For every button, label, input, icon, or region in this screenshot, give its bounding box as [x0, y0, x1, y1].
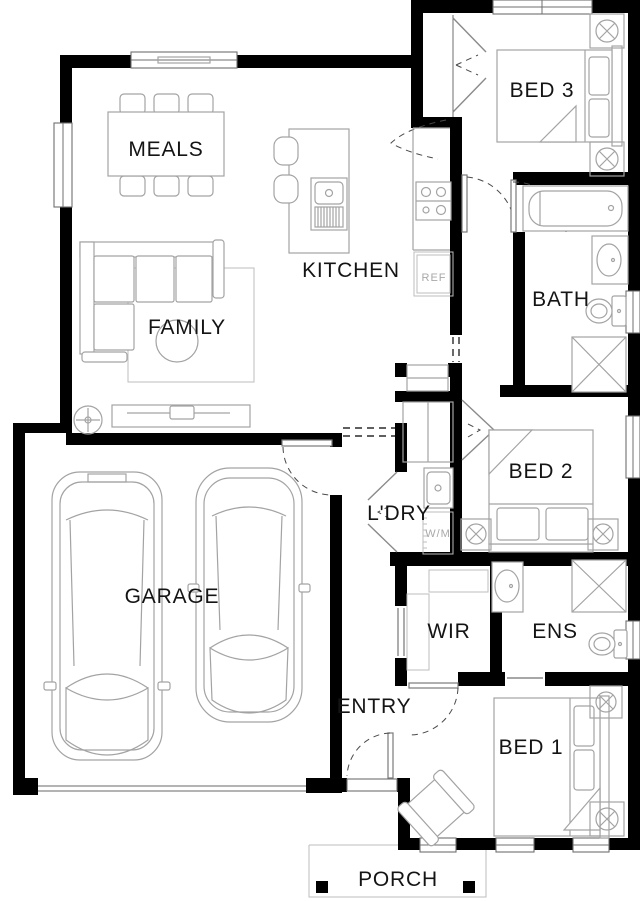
bed1-door: [409, 683, 458, 735]
vanity-basin-icon: [592, 236, 628, 284]
wir-doorway: [398, 608, 404, 656]
room-label-kitchen: KITCHEN: [302, 259, 400, 282]
porch-post: [463, 881, 475, 893]
ceiling-light-icon: [590, 14, 624, 48]
window-ens-right: [626, 621, 640, 659]
window-meals-left: [54, 123, 72, 207]
sofa-icon: [80, 240, 224, 362]
front-door: [347, 733, 397, 791]
room-label-laundry: L'DRY: [367, 502, 431, 525]
bed3-robe-doors: [453, 15, 486, 117]
label-washer: W/M: [425, 528, 451, 540]
hall-door: [462, 175, 515, 232]
car-icon: [44, 472, 170, 760]
window-bed1-bottom-2: [496, 838, 534, 852]
hall-cupboard: [403, 402, 453, 462]
ceiling-fan-icon: [74, 406, 102, 434]
window-bed1-bottom-3: [573, 838, 609, 852]
linen-cupboard: [407, 365, 448, 391]
bed1-icon: [494, 696, 609, 838]
room-label-entry: ENTRY: [337, 695, 412, 718]
window-bath-right: [626, 291, 640, 333]
hall-opening: [453, 337, 459, 362]
room-label-family: FAMILY: [148, 316, 226, 339]
vanity-basin-icon: [492, 562, 523, 612]
shower-icon: [572, 337, 626, 392]
shower-icon: [572, 560, 626, 612]
tv-unit: [112, 405, 250, 427]
bed2-icon: [489, 430, 593, 552]
porch-post: [316, 881, 328, 893]
window-bed3-top: [493, 0, 592, 14]
toilet-icon: [586, 296, 626, 326]
floor-plan: MEALS KITCHEN FAMILY GARAGE ENTRY PORCH …: [0, 0, 640, 901]
bathtub-icon: [523, 186, 628, 231]
ceiling-light-icon: [590, 142, 624, 176]
ceiling-light-icon: [461, 519, 491, 550]
room-label-meals: MEALS: [128, 138, 203, 161]
floor-plan-drawing: MEALS KITCHEN FAMILY GARAGE ENTRY PORCH …: [0, 0, 640, 901]
room-label-garage: GARAGE: [125, 585, 220, 608]
cooktop-icon: [416, 182, 451, 220]
room-label-bed3: BED 3: [510, 79, 575, 102]
entry-opening: [343, 428, 395, 436]
room-label-bed2: BED 2: [509, 460, 574, 483]
window-meals-top: [131, 52, 237, 68]
room-label-wir: WIR: [427, 620, 470, 643]
room-label-bed1: BED 1: [499, 736, 564, 759]
room-label-porch: PORCH: [358, 868, 438, 891]
room-label-bath: BATH: [532, 288, 590, 311]
garage-door-internal: [282, 440, 332, 495]
window-bed2-right: [626, 416, 640, 478]
toilet-icon: [589, 630, 627, 658]
room-label-ens: ENS: [532, 620, 578, 643]
label-fridge: REF: [422, 272, 447, 284]
garage-roller-door: [38, 786, 306, 791]
